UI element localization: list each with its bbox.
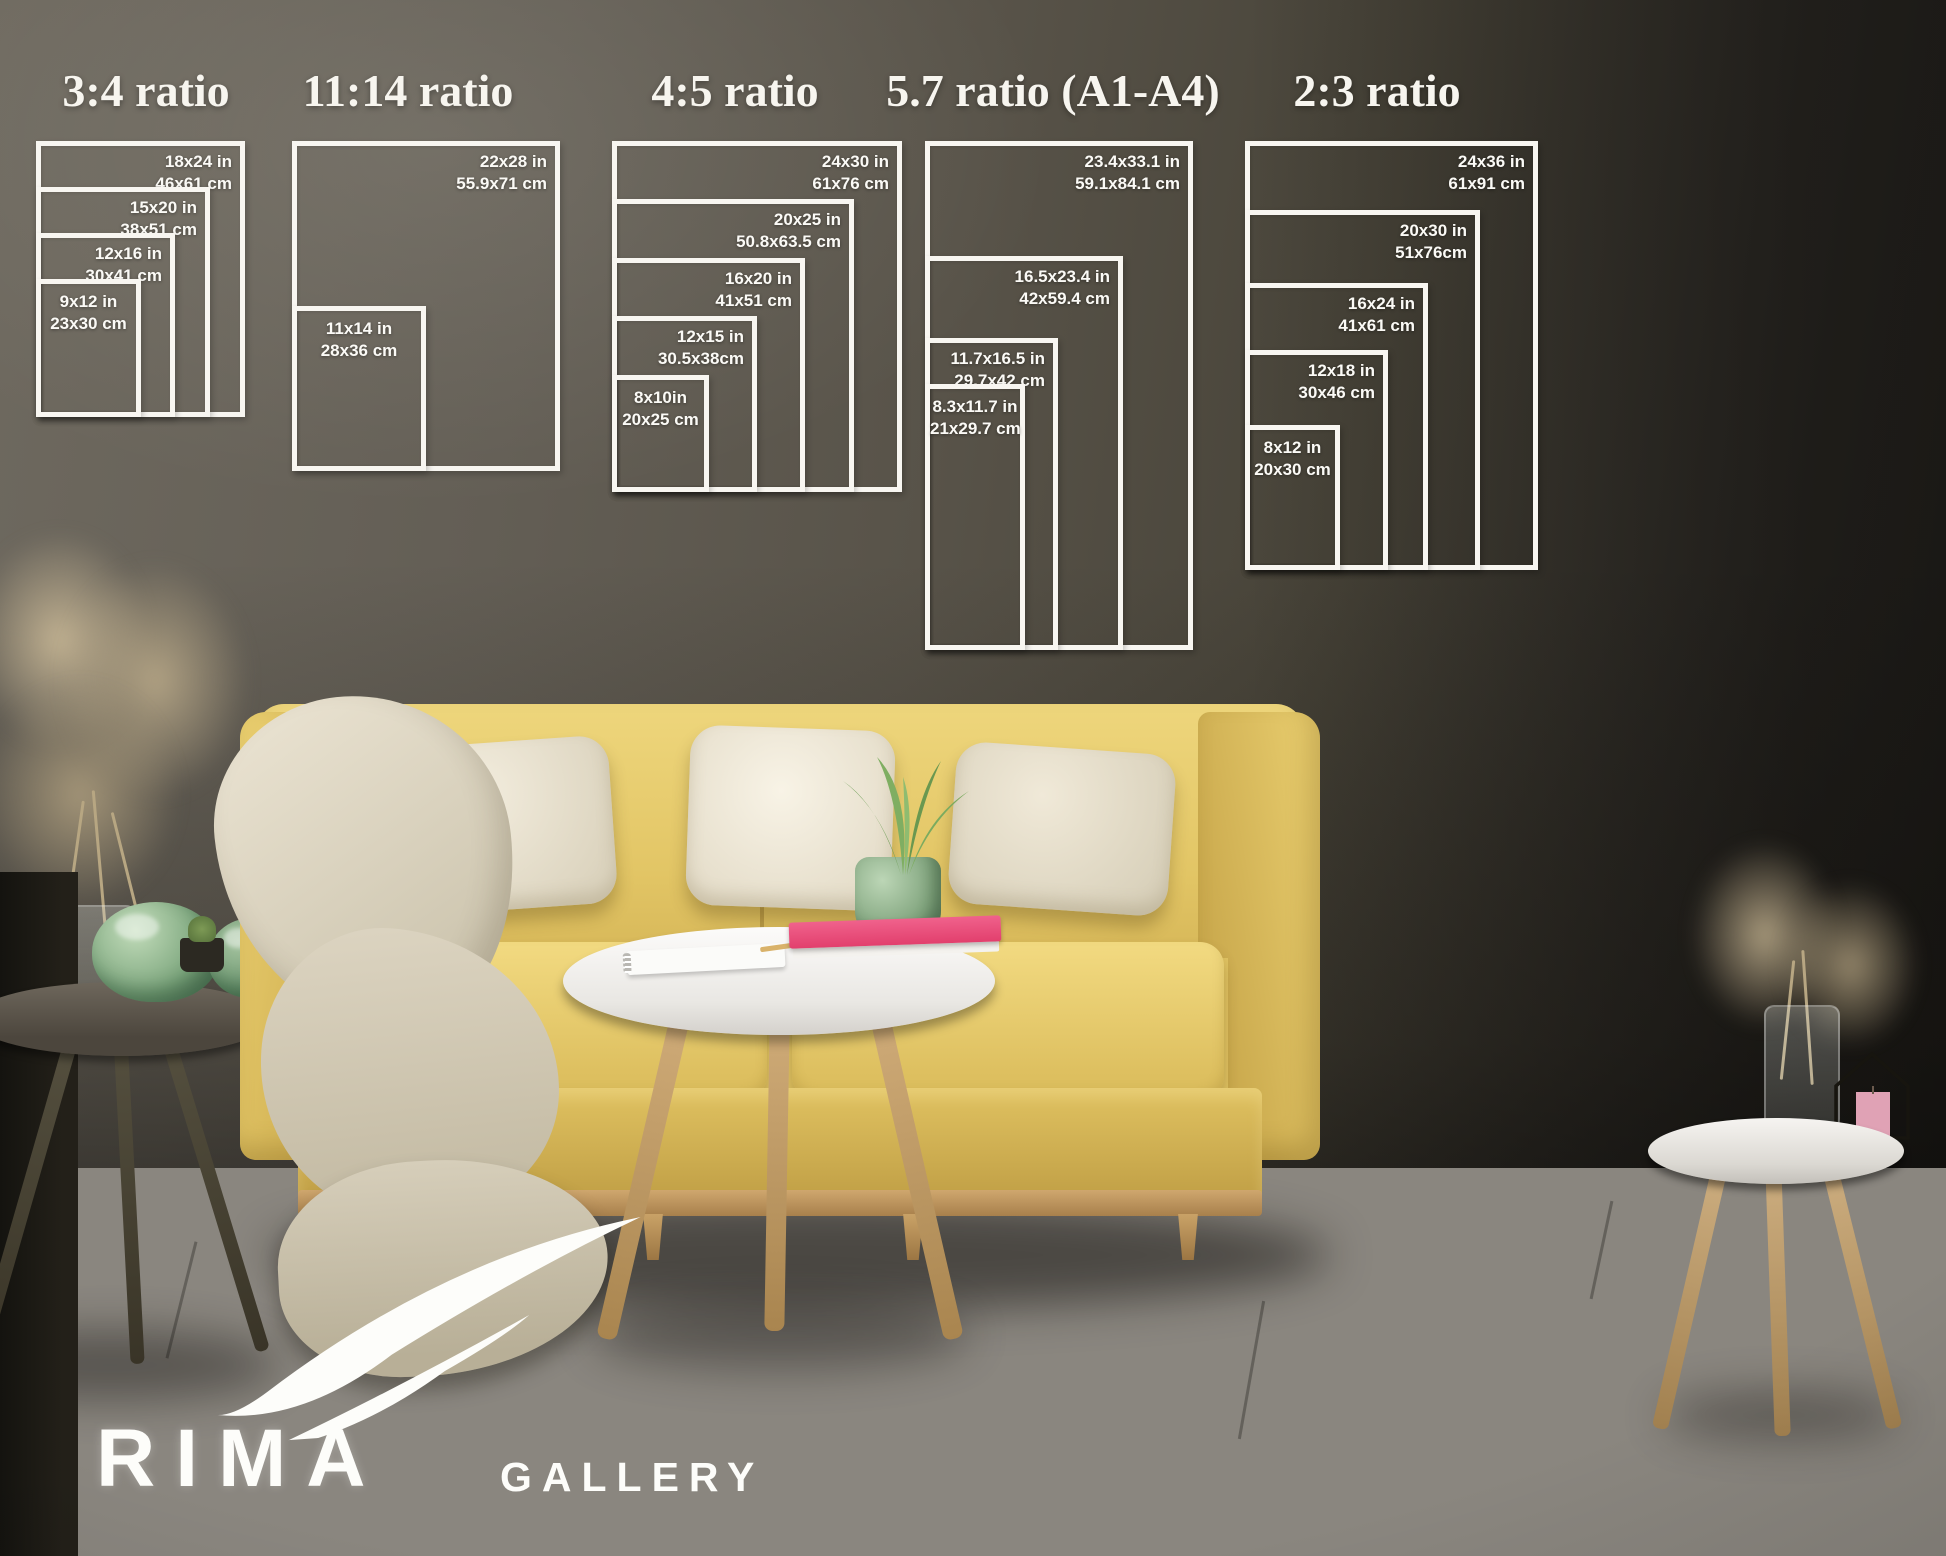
table-leg: [1652, 1164, 1728, 1431]
size-label: 12x18 in30x46 cm: [1298, 360, 1375, 405]
size-inches: 11x14 in: [297, 318, 421, 340]
size-inches: 11.7x16.5 in: [950, 348, 1045, 370]
size-centimeters: 59.1x84.1 cm: [1075, 173, 1180, 195]
size-inches: 12x15 in: [658, 326, 744, 348]
brand-suffix: GALLERY: [500, 1454, 764, 1501]
size-centimeters: 23x30 cm: [41, 313, 136, 335]
size-label: 20x30 in51x76cm: [1395, 220, 1467, 265]
size-centimeters: 42x59.4 cm: [1015, 288, 1110, 310]
size-inches: 12x16 in: [85, 243, 162, 265]
size-label: 24x36 in61x91 cm: [1448, 151, 1525, 196]
size-centimeters: 61x76 cm: [812, 173, 889, 195]
size-box: 9x12 in23x30 cm: [36, 279, 141, 417]
size-centimeters: 41x51 cm: [715, 290, 792, 312]
table-top: [1648, 1118, 1904, 1184]
size-label: 12x15 in30.5x38cm: [658, 326, 744, 371]
sofa-leg: [1175, 1214, 1201, 1260]
size-centimeters: 21x29.7 cm: [930, 418, 1020, 440]
size-inches: 23.4x33.1 in: [1075, 151, 1180, 173]
size-label: 16.5x23.4 in42x59.4 cm: [1015, 266, 1110, 311]
vase-highlight: [115, 914, 159, 940]
size-inches: 20x30 in: [1395, 220, 1467, 242]
size-centimeters: 50.8x63.5 cm: [736, 231, 841, 253]
size-inches: 9x12 in: [41, 291, 136, 313]
size-inches: 8x10in: [617, 387, 704, 409]
brand-name: RIMA: [96, 1412, 386, 1506]
ratio-group-title: 2:3 ratio: [1077, 64, 1677, 117]
size-guide-mockup: 3:4 ratio18x24 in46x61 cm15x20 in38x51 c…: [0, 0, 1946, 1556]
size-inches: 12x18 in: [1298, 360, 1375, 382]
size-label: 23.4x33.1 in59.1x84.1 cm: [1075, 151, 1180, 196]
size-centimeters: 61x91 cm: [1448, 173, 1525, 195]
size-inches: 8.3x11.7 in: [930, 396, 1020, 418]
size-centimeters: 30x46 cm: [1298, 382, 1375, 404]
size-label: 11x14 in28x36 cm: [297, 318, 421, 363]
brand-logo: RIMA GALLERY: [80, 1230, 840, 1530]
aloe-plant: [823, 747, 983, 877]
size-inches: 16x20 in: [715, 268, 792, 290]
size-label: 16x20 in41x51 cm: [715, 268, 792, 313]
size-inches: 18x24 in: [155, 151, 232, 173]
size-inches: 16x24 in: [1338, 293, 1415, 315]
size-inches: 15x20 in: [120, 197, 197, 219]
size-inches: 16.5x23.4 in: [1015, 266, 1110, 288]
table-leg: [870, 1015, 964, 1341]
size-centimeters: 51x76cm: [1395, 242, 1467, 264]
size-centimeters: 30.5x38cm: [658, 348, 744, 370]
right-side-table: [1648, 1118, 1908, 1438]
size-centimeters: 41x61 cm: [1338, 315, 1415, 337]
size-centimeters: 55.9x71 cm: [456, 173, 547, 195]
table-leg: [0, 1034, 79, 1355]
size-box: 8x12 in20x30 cm: [1245, 425, 1340, 570]
size-label: 16x24 in41x61 cm: [1338, 293, 1415, 338]
cactus: [188, 916, 216, 942]
size-label: 24x30 in61x76 cm: [812, 151, 889, 196]
size-inches: 24x36 in: [1448, 151, 1525, 173]
table-leg: [1822, 1164, 1903, 1430]
size-inches: 22x28 in: [456, 151, 547, 173]
size-inches: 8x12 in: [1250, 437, 1335, 459]
size-label: 8.3x11.7 in21x29.7 cm: [930, 396, 1020, 441]
print-size-diagram: 3:4 ratio18x24 in46x61 cm15x20 in38x51 c…: [0, 0, 1946, 800]
size-box: 11x14 in28x36 cm: [292, 306, 426, 471]
size-box: 8x10in20x25 cm: [612, 375, 709, 492]
size-label: 22x28 in55.9x71 cm: [456, 151, 547, 196]
size-centimeters: 20x25 cm: [617, 409, 704, 431]
size-label: 8x12 in20x30 cm: [1250, 437, 1335, 482]
size-centimeters: 28x36 cm: [297, 340, 421, 362]
size-label: 20x25 in50.8x63.5 cm: [736, 209, 841, 254]
table-leg: [1765, 1166, 1790, 1436]
size-box: 8.3x11.7 in21x29.7 cm: [925, 384, 1025, 650]
size-label: 8x10in20x25 cm: [617, 387, 704, 432]
size-inches: 20x25 in: [736, 209, 841, 231]
size-label: 9x12 in23x30 cm: [41, 291, 136, 336]
size-inches: 24x30 in: [812, 151, 889, 173]
size-centimeters: 20x30 cm: [1250, 459, 1335, 481]
